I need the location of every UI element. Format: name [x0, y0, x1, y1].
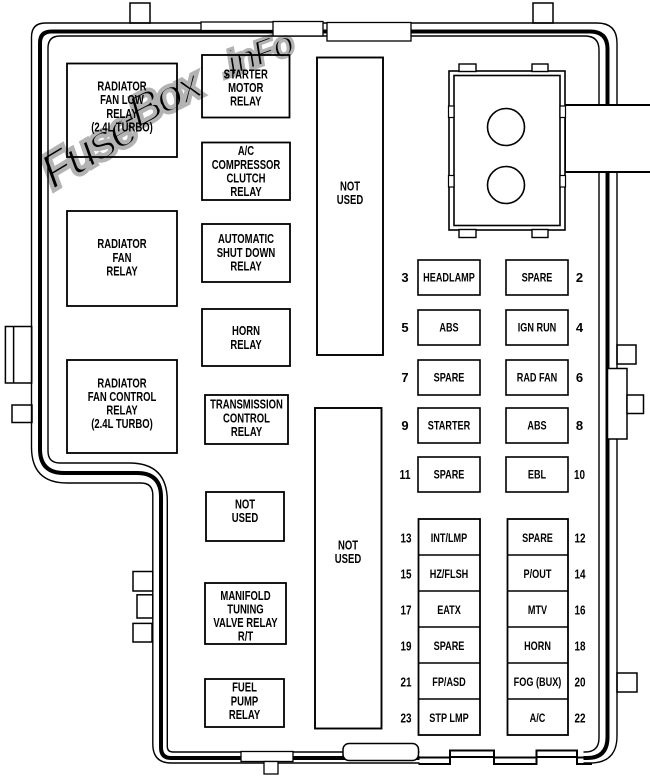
- svg-text:ABS: ABS: [439, 321, 458, 335]
- svg-text:14: 14: [575, 567, 587, 582]
- svg-text:4: 4: [576, 320, 584, 335]
- svg-text:TRANSMISSION: TRANSMISSION: [210, 398, 283, 412]
- svg-text:INT/LMP: INT/LMP: [431, 531, 468, 545]
- svg-text:22: 22: [575, 711, 586, 726]
- svg-text:SHUT DOWN: SHUT DOWN: [217, 246, 276, 260]
- svg-text:8: 8: [576, 418, 583, 433]
- svg-text:CLUTCH: CLUTCH: [226, 171, 265, 185]
- svg-text:SPARE: SPARE: [522, 271, 553, 285]
- svg-text:RADIATOR: RADIATOR: [97, 376, 146, 390]
- svg-text:STARTER: STARTER: [428, 419, 471, 433]
- svg-text:12: 12: [575, 531, 586, 546]
- svg-text:FAN: FAN: [113, 251, 132, 265]
- svg-text:FUEL: FUEL: [232, 681, 257, 695]
- svg-text:9: 9: [401, 418, 408, 433]
- svg-text:19: 19: [401, 639, 412, 654]
- svg-text:COMPRESSOR: COMPRESSOR: [212, 158, 281, 172]
- svg-text:10: 10: [574, 467, 585, 482]
- svg-text:SPARE: SPARE: [434, 639, 465, 653]
- svg-text:NOT: NOT: [235, 497, 255, 511]
- svg-text:13: 13: [401, 531, 412, 546]
- svg-text:HORN: HORN: [524, 639, 551, 653]
- svg-text:A/C: A/C: [530, 711, 546, 725]
- svg-text:RELAY: RELAY: [230, 185, 262, 199]
- svg-text:5: 5: [401, 320, 408, 335]
- svg-text:RELAY: RELAY: [230, 338, 262, 352]
- svg-text:3: 3: [401, 270, 408, 285]
- svg-text:AUTOMATIC: AUTOMATIC: [218, 232, 274, 246]
- svg-text:20: 20: [575, 675, 586, 690]
- svg-text:CONTROL: CONTROL: [223, 411, 270, 425]
- svg-text:RELAY: RELAY: [231, 425, 263, 439]
- svg-text:EBL: EBL: [528, 468, 546, 482]
- svg-text:FOG (BUX): FOG (BUX): [514, 675, 562, 689]
- svg-text:RAD FAN: RAD FAN: [517, 371, 558, 385]
- svg-text:RELAY: RELAY: [230, 95, 262, 109]
- svg-text:(2.4L TURBO): (2.4L TURBO): [91, 417, 153, 431]
- svg-text:SPARE: SPARE: [522, 531, 553, 545]
- svg-text:IGN RUN: IGN RUN: [518, 321, 557, 335]
- svg-text:2: 2: [576, 270, 583, 285]
- svg-text:R/T: R/T: [238, 630, 254, 644]
- svg-text:7: 7: [401, 370, 408, 385]
- svg-text:USED: USED: [232, 511, 258, 525]
- svg-text:23: 23: [401, 711, 412, 726]
- svg-text:STP LMP: STP LMP: [429, 711, 468, 725]
- svg-text:6: 6: [576, 370, 583, 385]
- svg-text:ABS: ABS: [527, 419, 546, 433]
- svg-text:MTV: MTV: [528, 603, 547, 617]
- svg-text:RELAY: RELAY: [229, 708, 261, 722]
- svg-text:18: 18: [575, 639, 586, 654]
- svg-text:15: 15: [401, 567, 412, 582]
- svg-text:RADIATOR: RADIATOR: [97, 237, 146, 251]
- svg-text:RELAY: RELAY: [106, 404, 138, 418]
- svg-text:RELAY: RELAY: [106, 265, 138, 279]
- svg-text:TUNING: TUNING: [227, 603, 263, 617]
- svg-text:HORN: HORN: [232, 324, 260, 338]
- svg-text:FAN CONTROL: FAN CONTROL: [88, 390, 157, 404]
- svg-text:NOT: NOT: [340, 179, 360, 193]
- svg-text:PUMP: PUMP: [231, 694, 258, 708]
- svg-text:11: 11: [400, 467, 411, 482]
- svg-text:P/OUT: P/OUT: [524, 567, 552, 581]
- svg-text:EATX: EATX: [437, 603, 461, 617]
- svg-text:17: 17: [401, 603, 412, 618]
- svg-text:21: 21: [401, 675, 412, 690]
- svg-text:RELAY: RELAY: [230, 259, 262, 273]
- svg-text:USED: USED: [335, 552, 361, 566]
- svg-text:MANIFOLD: MANIFOLD: [220, 589, 270, 603]
- svg-text:SPARE: SPARE: [434, 468, 465, 482]
- svg-text:HEADLAMP: HEADLAMP: [423, 271, 475, 285]
- svg-text:USED: USED: [337, 193, 363, 207]
- svg-text:SPARE: SPARE: [434, 371, 465, 385]
- svg-text:VALVE RELAY: VALVE RELAY: [213, 616, 278, 630]
- svg-text:16: 16: [575, 603, 586, 618]
- svg-text:A/C: A/C: [238, 144, 254, 158]
- svg-text:FP/ASD: FP/ASD: [432, 675, 466, 689]
- svg-text:HZ/FLSH: HZ/FLSH: [430, 567, 469, 581]
- svg-text:NOT: NOT: [338, 538, 358, 552]
